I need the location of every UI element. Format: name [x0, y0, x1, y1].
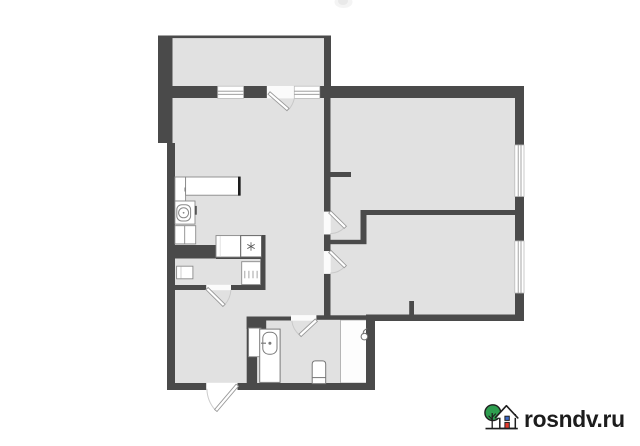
svg-text:rosndv.ru: rosndv.ru [524, 406, 625, 432]
